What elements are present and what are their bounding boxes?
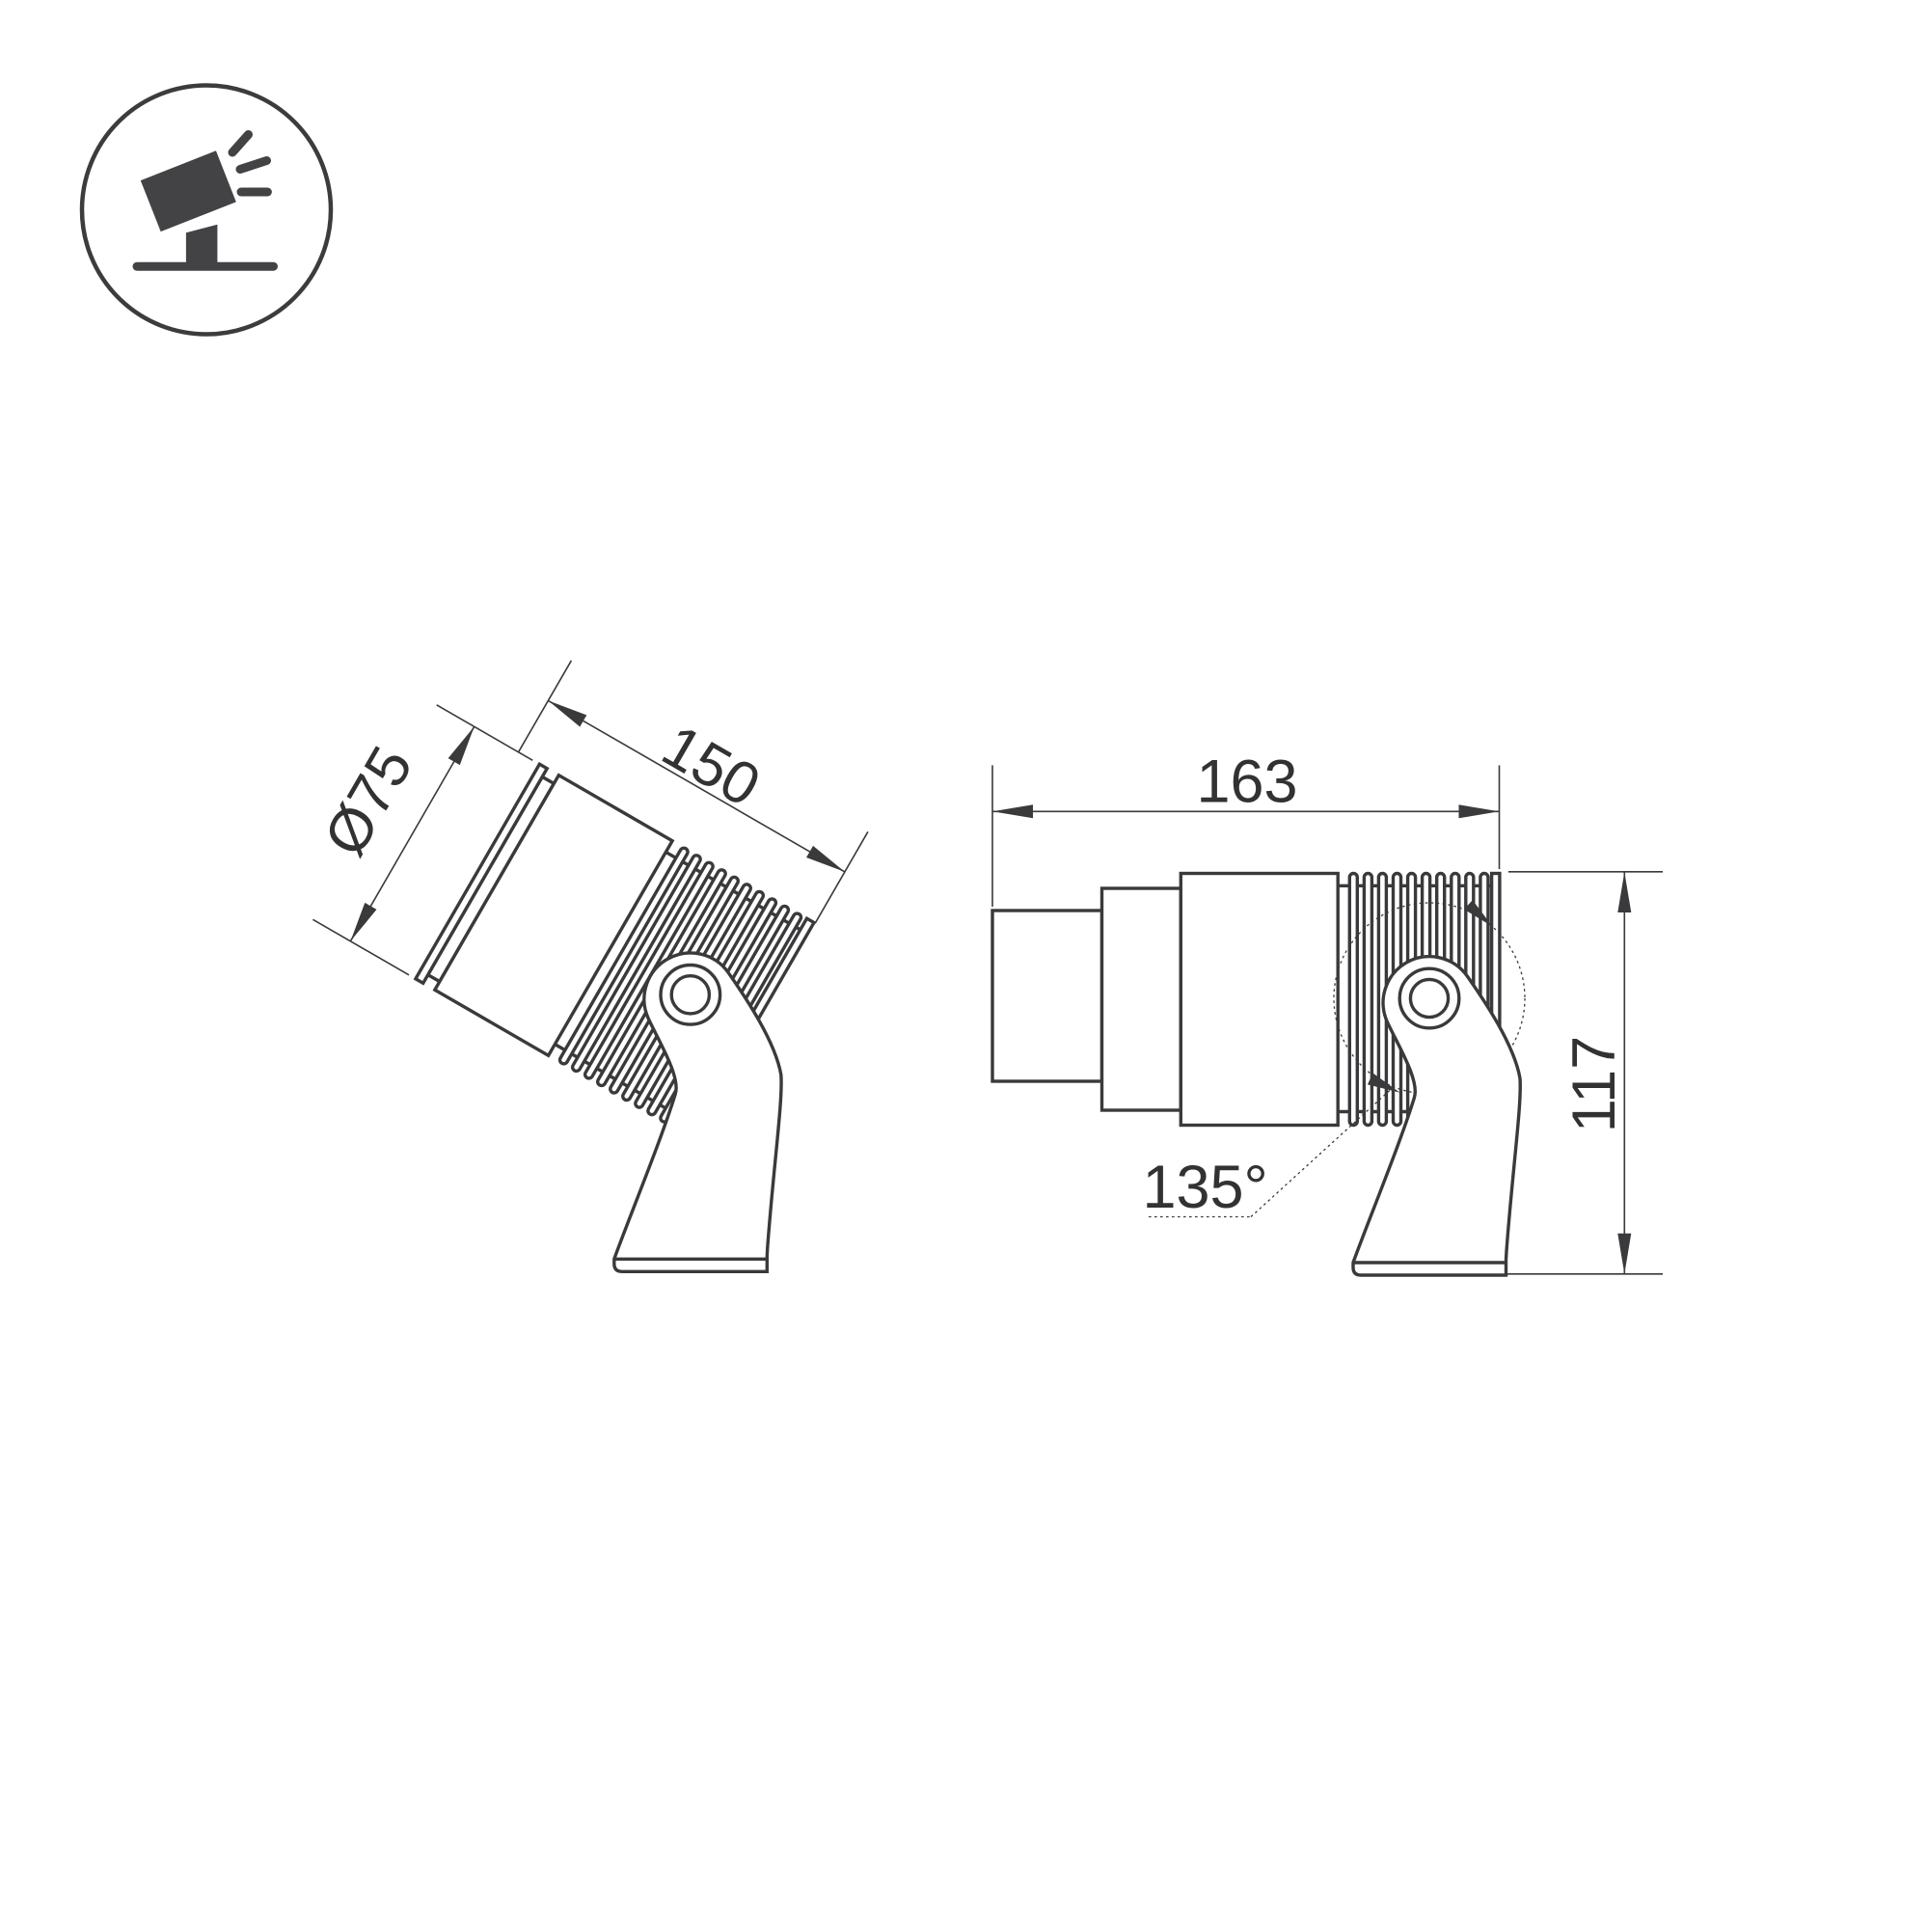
svg-text:163: 163 (1196, 748, 1297, 816)
svg-text:135°: 135° (1142, 1154, 1267, 1221)
svg-text:117: 117 (1561, 1036, 1628, 1132)
svg-text:Ø75: Ø75 (312, 736, 425, 867)
svg-text:150: 150 (651, 713, 771, 820)
